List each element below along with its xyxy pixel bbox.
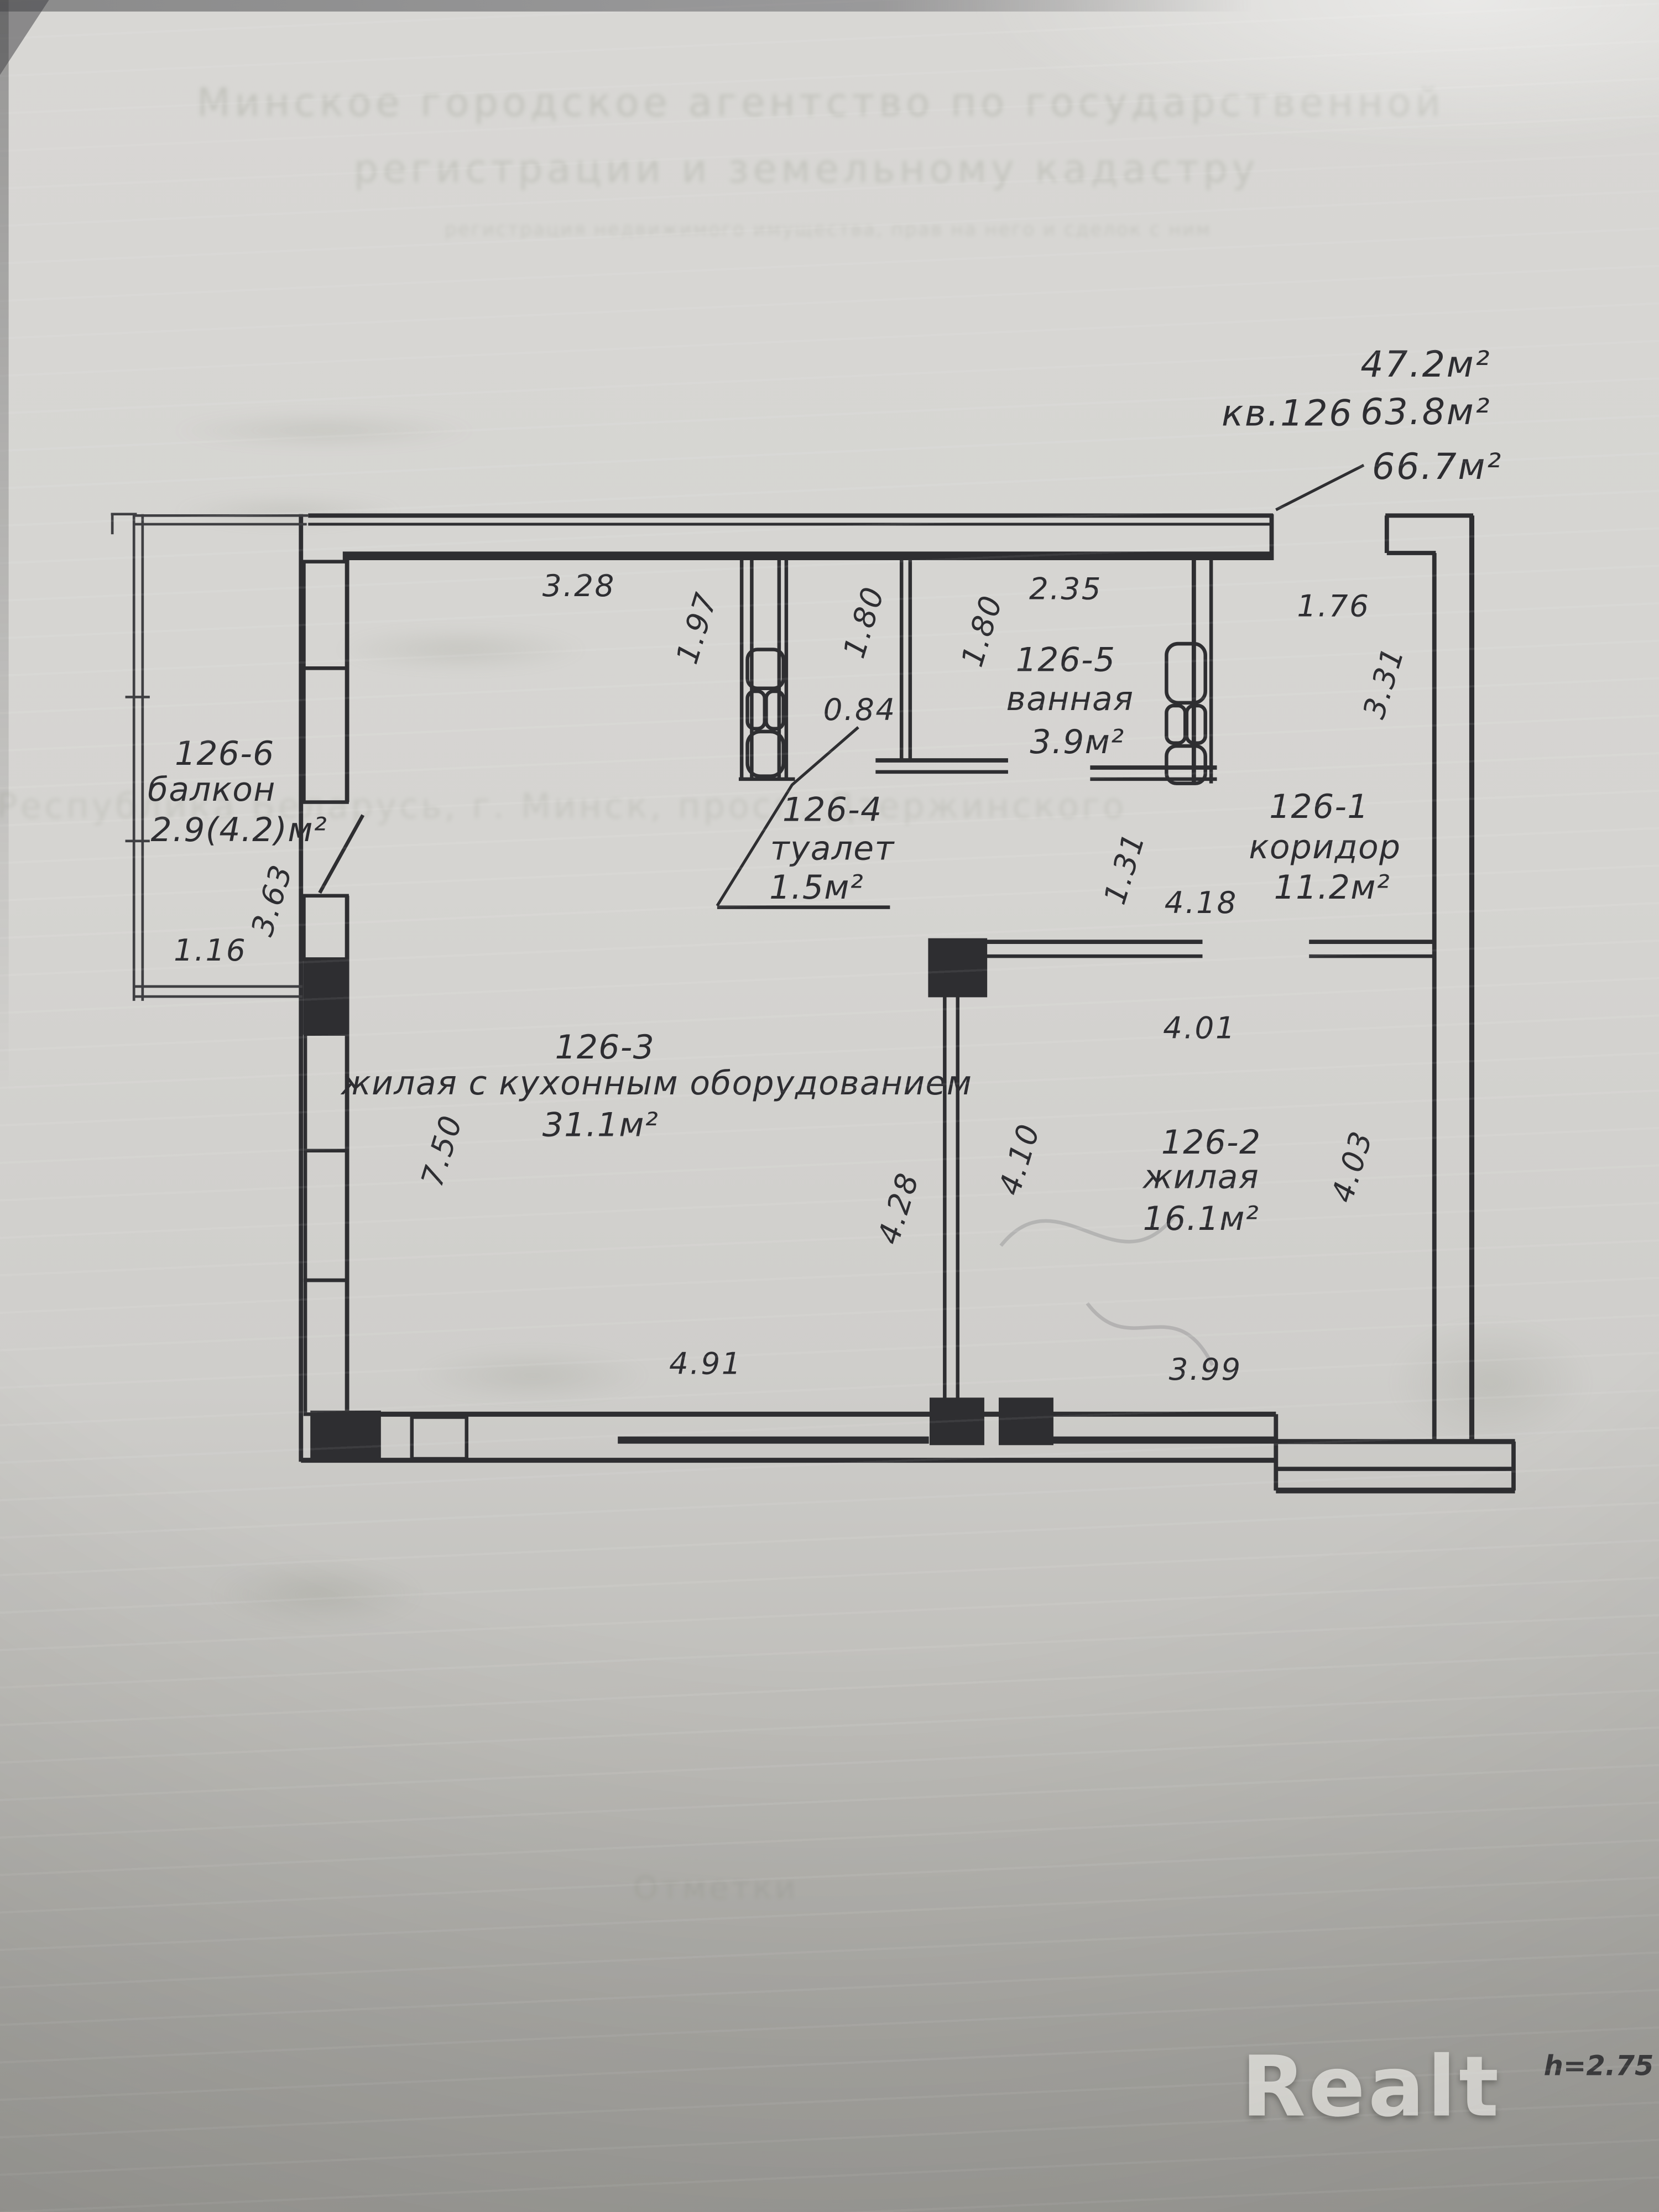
ceiling-height-note: h=2.75	[1544, 2051, 1654, 2082]
ghost-header-line2: регистрации и земельному кадастру	[353, 148, 1259, 192]
dimension-label: 4.01	[1163, 1011, 1236, 1046]
dimension-label: 0.84	[823, 693, 896, 728]
room-id-126-1: 126-1	[1269, 789, 1369, 827]
dimension-label: 3.63	[245, 860, 299, 940]
ghost-smudge	[115, 406, 533, 455]
wall-pier-solid	[930, 1399, 983, 1444]
room-area: 1.5м²	[769, 870, 864, 907]
ghost-smudge	[129, 489, 446, 533]
dimension-label: 2.35	[1029, 572, 1102, 607]
scanned-floorplan-page: Минское городское агентство по государст…	[0, 0, 1659, 2212]
room-name: туалет	[770, 831, 895, 869]
ghost-header-line3: регистрация недвижимого имущества, прав …	[445, 220, 1212, 241]
room-name: жилая	[1143, 1159, 1259, 1197]
ghost-smudge	[374, 1339, 691, 1411]
dimension-label: 4.28	[872, 1168, 926, 1249]
dimension-label: 4.03	[1325, 1126, 1379, 1207]
bathroom-fixtures	[1166, 644, 1205, 784]
room-id-126-2: 126-2	[1161, 1125, 1261, 1162]
ghost-notes-word: Отметки	[633, 1871, 799, 1907]
room-name: жилая с кухонным оборудованием	[341, 1066, 972, 1103]
dimension-label: 1.97	[670, 588, 724, 668]
dimension-label: 1.31	[1098, 828, 1152, 909]
wall-pier	[305, 1034, 347, 1151]
wall-pier-solid	[999, 1399, 1052, 1444]
room-name: ванная	[1006, 681, 1134, 719]
dimension-label: 1.80	[837, 582, 891, 662]
photo-left-edge	[0, 0, 9, 1094]
wall-pier-solid	[929, 939, 987, 997]
balcony-door-leaf	[320, 815, 363, 893]
floorplan-drawing	[0, 0, 1659, 2212]
ghost-header-line1: Минское городское агентство по государст…	[197, 81, 1445, 126]
paper-sheet: Минское городское агентство по государст…	[0, 0, 1659, 2212]
realt-watermark-logo: Realt	[1241, 2047, 1570, 2130]
photo-top-edge	[0, 0, 1253, 12]
room-id-126-3: 126-3	[555, 1030, 655, 1067]
ghost-smudge	[1354, 1296, 1627, 1469]
apartment-number: кв.126	[1222, 393, 1353, 435]
toilet-fixtures	[748, 649, 784, 776]
balcony-outline	[111, 514, 309, 1001]
room-area: 16.1м²	[1143, 1201, 1259, 1239]
dimension-label: 4.18	[1165, 886, 1238, 921]
dimension-label: 3.99	[1169, 1352, 1242, 1387]
apartment-leader-line	[1276, 465, 1364, 510]
ghost-address-line: Республика Беларусь, г. Минск, просп. Дз…	[0, 786, 1127, 827]
wall-pier	[304, 668, 347, 802]
dimension-label: 3.31	[1357, 643, 1411, 723]
wall-pier	[412, 1417, 467, 1459]
ghost-smudge	[288, 619, 634, 680]
dimension-label: 1.76	[1297, 589, 1370, 624]
wall-pier	[304, 896, 347, 959]
wall-pier	[305, 1151, 347, 1280]
room-area: 31.1м²	[542, 1108, 659, 1145]
room-area: 11.2м²	[1274, 870, 1390, 907]
apartment-area-value: 63.8м²	[1360, 391, 1491, 433]
dimension-label: 7.50	[415, 1110, 469, 1191]
scan-streaks	[0, 0, 1659, 2212]
wall-pier-solid	[304, 959, 348, 1034]
photo-vignette	[0, 0, 1659, 2212]
room-id-126-6: 126-6	[175, 736, 275, 774]
room-area: 3.9м²	[1030, 724, 1124, 762]
ghost-smudge	[173, 1548, 461, 1640]
dimension-label: 4.10	[993, 1119, 1047, 1199]
wall-pier-solid	[311, 1411, 380, 1462]
dimension-label: 3.28	[542, 569, 615, 604]
dimension-label: 1.80	[955, 591, 1009, 671]
ghost-signature-scrawl	[1001, 1217, 1213, 1365]
apartment-area-value: 47.2м²	[1360, 343, 1491, 385]
wall-pier	[305, 1280, 347, 1414]
apartment-area-value: 66.7м²	[1372, 446, 1503, 488]
plan-labels: 3.281.971.801.802.351.763.310.841.314.18…	[0, 0, 1659, 2212]
room-id-126-5: 126-5	[1016, 642, 1116, 680]
room-name: коридор	[1249, 830, 1401, 867]
dimension-label: 1.16	[174, 933, 247, 968]
